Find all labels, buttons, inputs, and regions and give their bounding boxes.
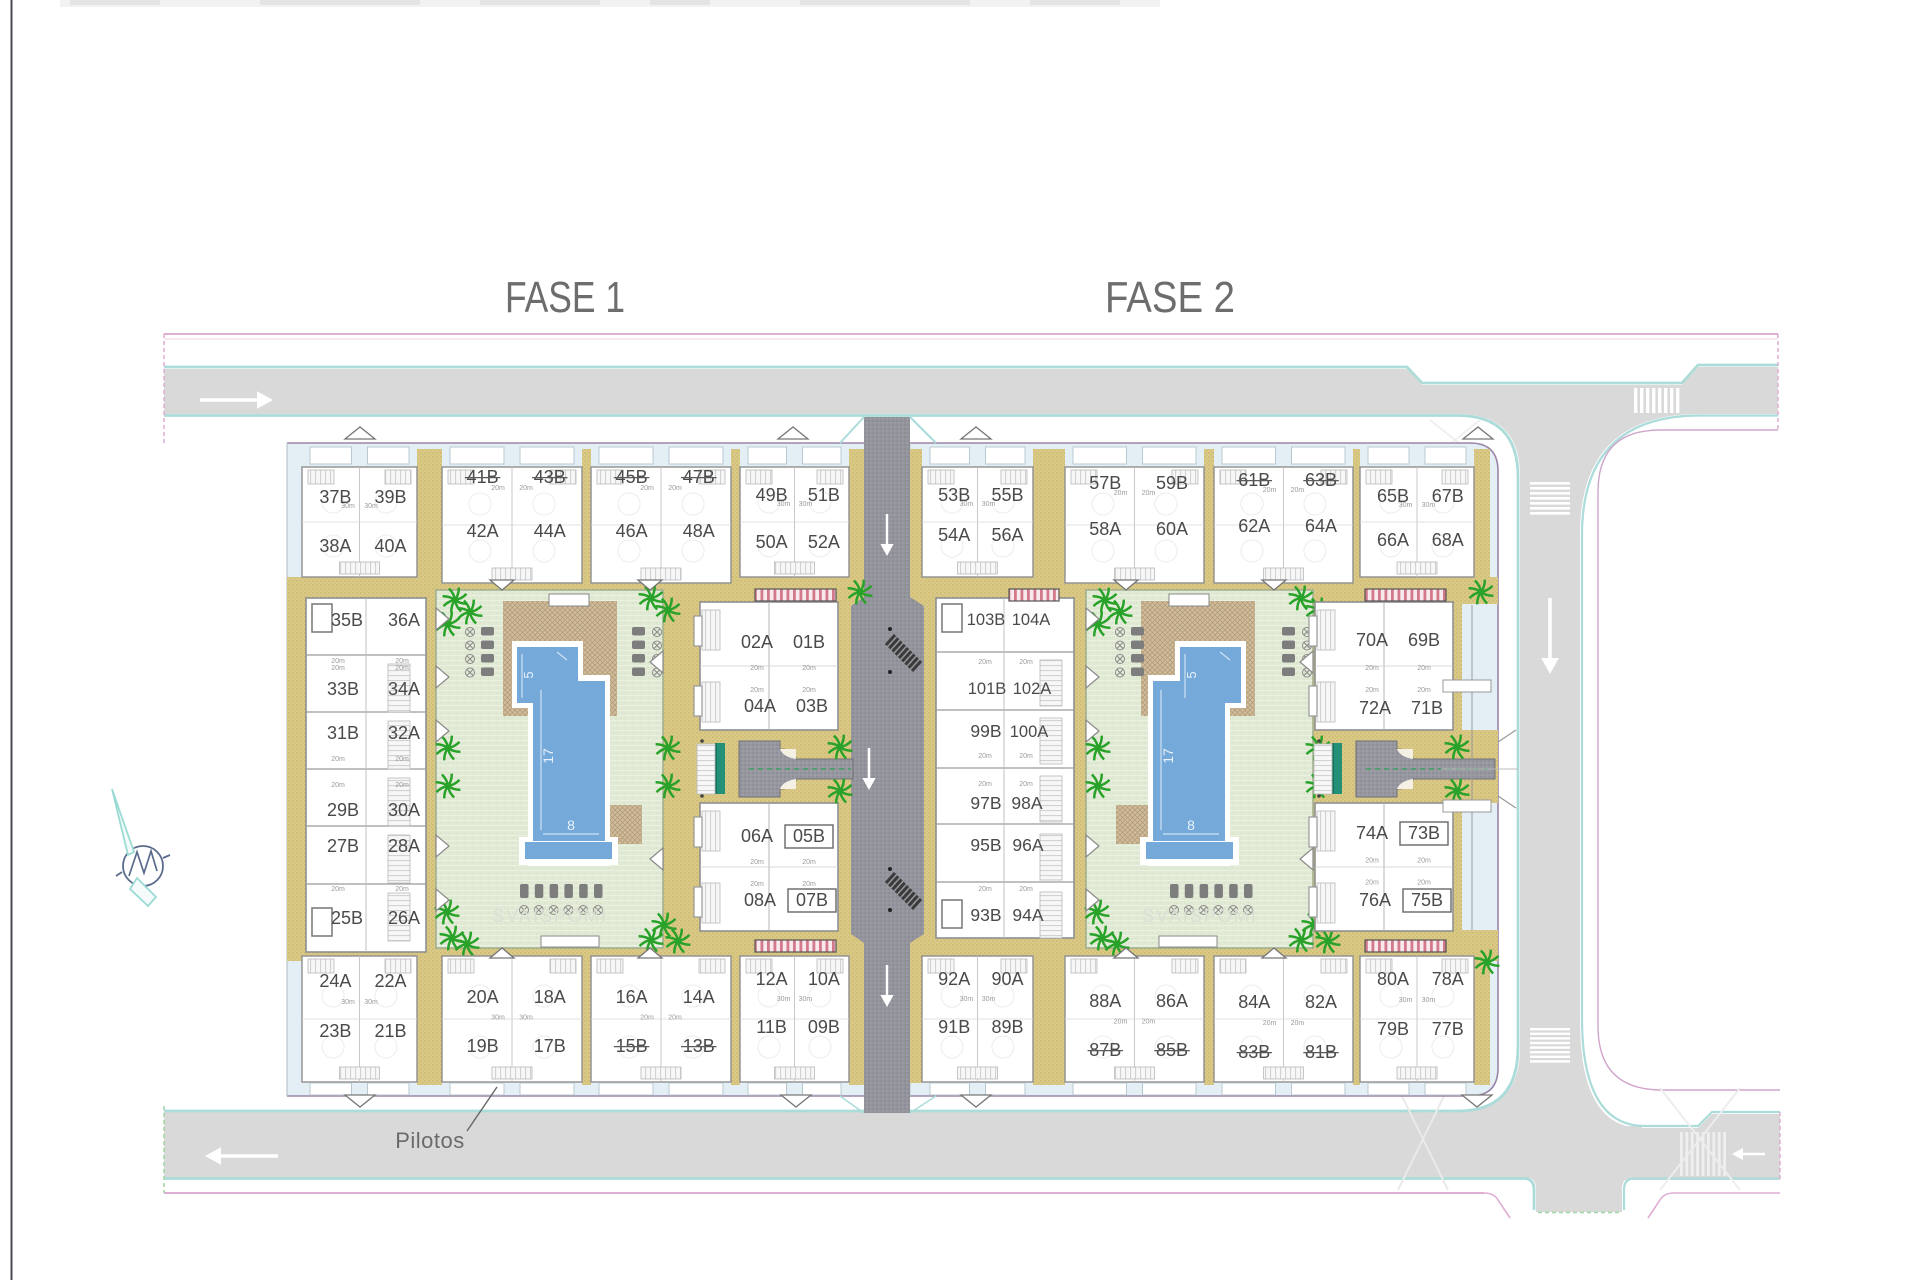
svg-text:20m: 20m: [1365, 858, 1379, 865]
svg-text:30m: 30m: [364, 999, 378, 1006]
svg-text:FASE 1: FASE 1: [505, 273, 625, 322]
svg-text:30m: 30m: [777, 996, 791, 1003]
svg-text:08A: 08A: [744, 890, 776, 910]
svg-text:20m: 20m: [1291, 1020, 1305, 1027]
svg-text:20m: 20m: [331, 665, 345, 672]
svg-text:30m: 30m: [960, 501, 974, 508]
svg-text:12A: 12A: [756, 969, 788, 989]
svg-text:74A: 74A: [1356, 823, 1388, 843]
svg-text:20m: 20m: [395, 886, 409, 893]
svg-text:20m: 20m: [1263, 1020, 1277, 1027]
svg-text:30m: 30m: [1422, 502, 1436, 509]
svg-text:20m: 20m: [1365, 687, 1379, 694]
svg-text:26A: 26A: [388, 908, 420, 928]
svg-text:18A: 18A: [534, 987, 566, 1007]
svg-text:20m: 20m: [395, 665, 409, 672]
svg-text:20m: 20m: [1291, 487, 1305, 494]
svg-text:11B: 11B: [756, 1017, 787, 1037]
svg-text:30A: 30A: [388, 800, 420, 820]
svg-text:20m: 20m: [802, 859, 816, 866]
svg-text:20m: 20m: [802, 687, 816, 694]
svg-text:20m: 20m: [331, 782, 345, 789]
svg-text:50A: 50A: [756, 532, 788, 552]
svg-text:20m: 20m: [978, 886, 992, 893]
svg-text:30m: 30m: [777, 501, 791, 508]
svg-text:20m: 20m: [1114, 1019, 1128, 1026]
svg-text:16A: 16A: [616, 987, 648, 1007]
svg-text:33B: 33B: [327, 679, 359, 699]
svg-text:69B: 69B: [1408, 630, 1440, 650]
svg-text:20m: 20m: [1019, 659, 1033, 666]
svg-text:30m: 30m: [1399, 502, 1413, 509]
svg-text:23B: 23B: [319, 1021, 351, 1041]
svg-text:19B: 19B: [467, 1036, 499, 1056]
svg-text:20m: 20m: [978, 753, 992, 760]
svg-text:17: 17: [540, 748, 556, 764]
svg-text:21B: 21B: [375, 1021, 407, 1041]
svg-text:20m: 20m: [519, 485, 533, 492]
svg-text:20m: 20m: [1142, 1019, 1156, 1026]
svg-text:20m: 20m: [1417, 858, 1431, 865]
svg-text:25B: 25B: [331, 908, 363, 928]
svg-text:20m: 20m: [331, 756, 345, 763]
svg-text:30m: 30m: [960, 996, 974, 1003]
svg-text:02A: 02A: [741, 632, 773, 652]
svg-text:SVAISPOMI: SVAISPOMI: [1142, 906, 1258, 926]
svg-text:20m: 20m: [750, 881, 764, 888]
svg-text:20m: 20m: [395, 756, 409, 763]
svg-text:20m: 20m: [1019, 886, 1033, 893]
svg-text:67B: 67B: [1432, 486, 1464, 506]
svg-text:24A: 24A: [319, 971, 351, 991]
svg-text:30m: 30m: [341, 503, 355, 510]
svg-text:20m: 20m: [1019, 753, 1033, 760]
svg-text:92A: 92A: [938, 969, 970, 989]
svg-text:40A: 40A: [375, 536, 407, 556]
svg-text:20m: 20m: [1019, 781, 1033, 788]
svg-text:100A: 100A: [1010, 723, 1049, 741]
svg-text:03B: 03B: [796, 696, 828, 716]
svg-text:30m: 30m: [1422, 997, 1436, 1004]
svg-text:20m: 20m: [640, 1015, 654, 1022]
svg-text:84A: 84A: [1238, 992, 1270, 1012]
svg-text:20m: 20m: [750, 687, 764, 694]
svg-text:20m: 20m: [640, 485, 654, 492]
svg-text:20m: 20m: [395, 782, 409, 789]
svg-text:102A: 102A: [1013, 680, 1052, 698]
svg-text:31B: 31B: [327, 723, 359, 743]
svg-text:30m: 30m: [982, 501, 996, 508]
svg-text:42A: 42A: [467, 521, 499, 541]
svg-text:70A: 70A: [1356, 630, 1388, 650]
svg-text:51B: 51B: [808, 485, 840, 505]
svg-text:20m: 20m: [1365, 665, 1379, 672]
svg-text:91B: 91B: [938, 1017, 970, 1037]
svg-text:8: 8: [1187, 817, 1195, 833]
svg-text:30m: 30m: [519, 1015, 533, 1022]
svg-text:20m: 20m: [1417, 687, 1431, 694]
svg-text:82A: 82A: [1305, 992, 1337, 1012]
svg-text:48A: 48A: [683, 521, 715, 541]
svg-text:20m: 20m: [1365, 880, 1379, 887]
svg-text:77B: 77B: [1432, 1019, 1464, 1039]
svg-text:30m: 30m: [364, 503, 378, 510]
svg-text:20m: 20m: [668, 485, 682, 492]
svg-text:66A: 66A: [1377, 530, 1409, 550]
svg-text:06A: 06A: [741, 826, 773, 846]
svg-text:64A: 64A: [1305, 516, 1337, 536]
svg-text:89B: 89B: [991, 1017, 1023, 1037]
svg-text:20m: 20m: [331, 658, 345, 665]
svg-text:09B: 09B: [808, 1017, 840, 1037]
svg-text:32A: 32A: [388, 723, 420, 743]
svg-text:60A: 60A: [1156, 519, 1188, 539]
svg-text:30m: 30m: [799, 501, 813, 508]
svg-text:20A: 20A: [467, 987, 499, 1007]
svg-text:27B: 27B: [327, 836, 359, 856]
svg-text:20m: 20m: [750, 859, 764, 866]
svg-text:20m: 20m: [1114, 490, 1128, 497]
svg-text:44A: 44A: [534, 521, 566, 541]
svg-text:68A: 68A: [1432, 530, 1464, 550]
svg-text:01B: 01B: [793, 632, 825, 652]
svg-text:20m: 20m: [1142, 490, 1156, 497]
svg-text:05B: 05B: [793, 826, 825, 846]
svg-text:14A: 14A: [683, 987, 715, 1007]
svg-text:20m: 20m: [978, 659, 992, 666]
svg-text:20m: 20m: [331, 886, 345, 893]
svg-text:95B: 95B: [970, 835, 1001, 855]
svg-text:30m: 30m: [799, 996, 813, 1003]
svg-text:78A: 78A: [1432, 969, 1464, 989]
svg-text:90A: 90A: [991, 969, 1023, 989]
svg-text:20m: 20m: [491, 485, 505, 492]
svg-text:58A: 58A: [1089, 519, 1121, 539]
svg-text:29B: 29B: [327, 800, 359, 820]
svg-text:34A: 34A: [388, 679, 420, 699]
svg-text:99B: 99B: [970, 721, 1001, 741]
svg-text:86A: 86A: [1156, 991, 1188, 1011]
svg-text:20m: 20m: [802, 881, 816, 888]
svg-text:30m: 30m: [491, 1015, 505, 1022]
svg-text:39B: 39B: [375, 487, 407, 507]
svg-text:35B: 35B: [331, 610, 363, 630]
svg-text:20m: 20m: [1417, 665, 1431, 672]
svg-text:5: 5: [521, 671, 536, 678]
svg-text:20m: 20m: [978, 781, 992, 788]
svg-text:17B: 17B: [534, 1036, 566, 1056]
svg-text:56A: 56A: [991, 525, 1023, 545]
svg-text:20m: 20m: [668, 1015, 682, 1022]
svg-text:5: 5: [1184, 671, 1199, 678]
svg-text:20m: 20m: [395, 658, 409, 665]
svg-text:20m: 20m: [802, 665, 816, 672]
svg-text:10A: 10A: [808, 969, 840, 989]
svg-text:FASE 2: FASE 2: [1105, 273, 1235, 322]
svg-text:54A: 54A: [938, 525, 970, 545]
svg-text:62A: 62A: [1238, 516, 1270, 536]
svg-text:104A: 104A: [1012, 611, 1051, 629]
svg-text:30m: 30m: [1399, 997, 1413, 1004]
svg-text:73B: 73B: [1408, 823, 1440, 843]
svg-text:88A: 88A: [1089, 991, 1121, 1011]
svg-text:SVAISPOMI: SVAISPOMI: [492, 906, 608, 926]
svg-text:75B: 75B: [1411, 890, 1443, 910]
svg-text:52A: 52A: [808, 532, 840, 552]
svg-text:93B: 93B: [970, 905, 1001, 925]
svg-text:36A: 36A: [388, 610, 420, 630]
svg-text:79B: 79B: [1377, 1019, 1409, 1039]
svg-text:20m: 20m: [1417, 880, 1431, 887]
svg-text:07B: 07B: [796, 890, 828, 910]
svg-text:59B: 59B: [1156, 473, 1188, 493]
svg-text:94A: 94A: [1012, 905, 1043, 925]
svg-text:55B: 55B: [991, 485, 1023, 505]
svg-text:103B: 103B: [967, 611, 1006, 629]
svg-text:20m: 20m: [1263, 487, 1277, 494]
svg-text:20m: 20m: [750, 665, 764, 672]
svg-text:72A: 72A: [1359, 698, 1391, 718]
svg-text:22A: 22A: [375, 971, 407, 991]
svg-text:28A: 28A: [388, 836, 420, 856]
svg-text:46A: 46A: [616, 521, 648, 541]
svg-text:101B: 101B: [968, 680, 1007, 698]
svg-text:30m: 30m: [982, 996, 996, 1003]
svg-text:96A: 96A: [1012, 835, 1043, 855]
svg-text:98A: 98A: [1011, 793, 1042, 813]
svg-text:76A: 76A: [1359, 890, 1391, 910]
svg-text:30m: 30m: [341, 999, 355, 1006]
svg-text:71B: 71B: [1411, 698, 1443, 718]
svg-text:38A: 38A: [319, 536, 351, 556]
svg-text:97B: 97B: [970, 793, 1001, 813]
svg-text:Pilotos: Pilotos: [395, 1128, 465, 1153]
svg-text:17: 17: [1160, 748, 1176, 764]
svg-text:80A: 80A: [1377, 969, 1409, 989]
svg-text:8: 8: [567, 817, 575, 833]
svg-text:04A: 04A: [744, 696, 776, 716]
